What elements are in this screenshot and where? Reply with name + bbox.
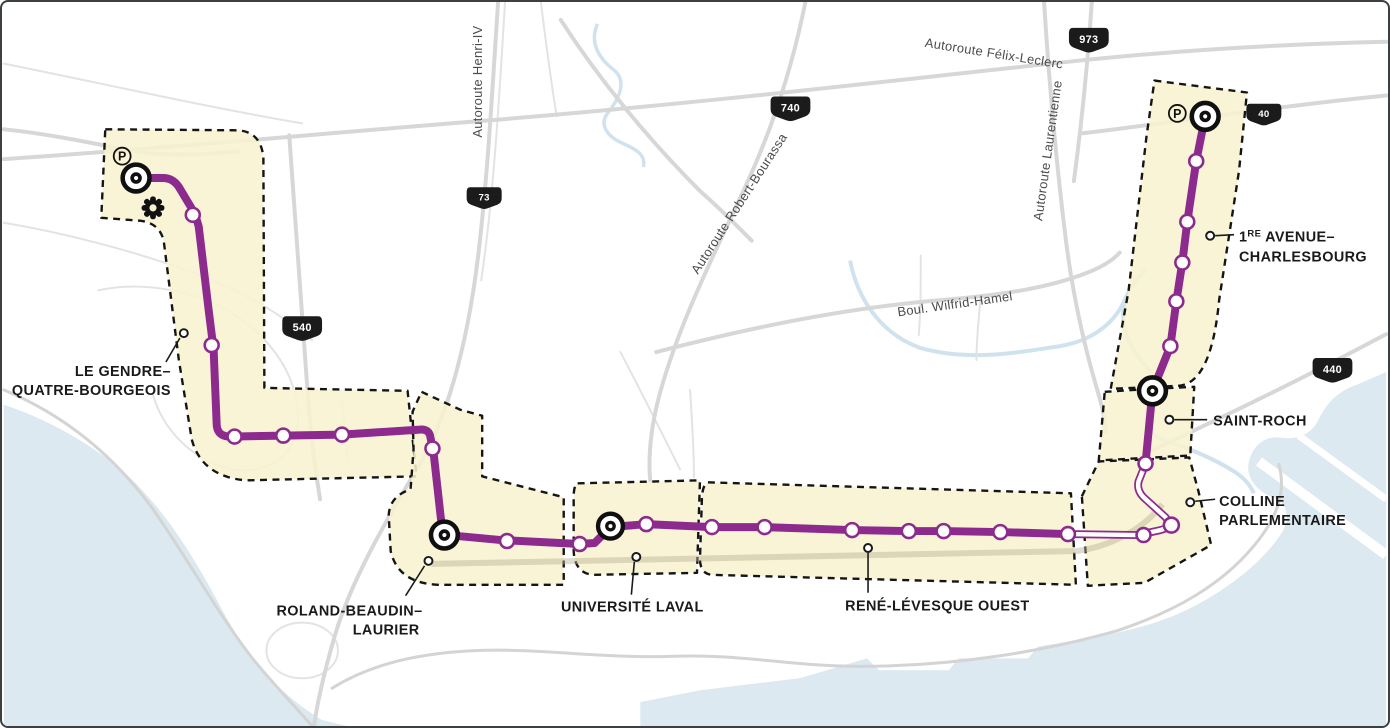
station-dot [705, 520, 719, 534]
zone-roland-beaudin [389, 392, 564, 585]
svg-text:40: 40 [1258, 109, 1269, 120]
highway-shield-540: 540 [282, 316, 322, 341]
station-dot [902, 524, 916, 538]
station-label-premiere-avenue: 1RE AVENUE– [1239, 229, 1335, 246]
station-dot [993, 525, 1007, 539]
station-dot [276, 429, 290, 443]
station-label-premiere-avenue: CHARLESBOURG [1239, 250, 1367, 266]
road-label-felix-leclerc: Autoroute Félix-Leclerc [924, 35, 1064, 72]
station-dot [1180, 215, 1194, 229]
terminus-charlesbourg [1192, 103, 1219, 130]
station-label-roland: LAURIER [353, 623, 420, 639]
road-wilfrid-hamel [656, 253, 1119, 352]
station-dot [186, 208, 200, 222]
map-canvas: P P 73 540 740 973 [2, 2, 1388, 726]
svg-text:P: P [118, 150, 126, 164]
station-label-roland: ROLAND-BEAUDIN– [276, 604, 422, 620]
station-dot [1163, 339, 1177, 353]
station-dot [228, 430, 242, 444]
station-label-le-gendre: QUATRE-BOURGEOIS [12, 383, 171, 399]
station-dot [1139, 456, 1153, 470]
terminus-le-gendre [123, 165, 150, 192]
station-dot [639, 517, 653, 531]
svg-text:440: 440 [1323, 364, 1342, 376]
highway-shield-73: 73 [467, 187, 502, 209]
station-label-rene: RENÉ-LÉVESQUE OUEST [845, 598, 1029, 615]
highway-shield-973: 973 [1069, 28, 1109, 53]
station-dot [758, 520, 772, 534]
svg-text:73: 73 [479, 192, 490, 203]
road-robert-bourassa [650, 2, 806, 481]
road-label-henri-iv: Autoroute Henri-IV [470, 25, 485, 137]
highway-shield-40: 40 [1246, 104, 1281, 126]
station-label-universite: UNIVERSITÉ LAVAL [561, 599, 704, 616]
station-dot [205, 338, 219, 352]
station-label-colline: PARLEMENTAIRE [1219, 513, 1346, 529]
svg-text:740: 740 [781, 102, 800, 114]
station-dot [1061, 527, 1075, 541]
svg-text:973: 973 [1079, 34, 1098, 46]
station-dot [1175, 256, 1189, 270]
terminus-saint-roch [1139, 377, 1166, 404]
station-dot [937, 524, 951, 538]
svg-text:540: 540 [293, 322, 312, 334]
station-dot [500, 534, 514, 548]
station-label-le-gendre: LE GENDRE– [75, 364, 171, 380]
road-nw-curve [561, 20, 752, 241]
road-labels: Autoroute Henri-IV Autoroute Félix-Lecle… [470, 25, 1065, 319]
station-label-saint-roch: SAINT-ROCH [1213, 414, 1307, 430]
terminus-universite-laval [598, 514, 623, 539]
station-dot [1169, 294, 1183, 308]
highway-shield-440: 440 [1313, 358, 1353, 383]
highway-shield-740: 740 [771, 96, 811, 121]
station-dot-tunnel [1137, 528, 1151, 542]
river-top [594, 24, 643, 167]
station-dot [845, 523, 859, 537]
road-label-wilfrid-hamel: Boul. Wilfrid-Hamel [896, 288, 1013, 319]
river-saint-charles [850, 261, 1145, 356]
tramway-map: P P 73 540 740 973 [0, 0, 1390, 728]
road-label-robert-bourassa: Autoroute Robert-Bourassa [688, 130, 790, 277]
terminus-roland-beaudin [431, 522, 458, 549]
svg-text:P: P [1173, 107, 1181, 121]
station-dot [573, 537, 587, 551]
station-dot [1189, 154, 1203, 168]
station-label-colline: COLLINE [1219, 494, 1285, 510]
gear-icon [142, 196, 165, 219]
station-dot [335, 428, 349, 442]
map-icons: P P [114, 105, 1186, 219]
station-dot-tunnel [1164, 518, 1179, 533]
station-dot [425, 442, 439, 456]
